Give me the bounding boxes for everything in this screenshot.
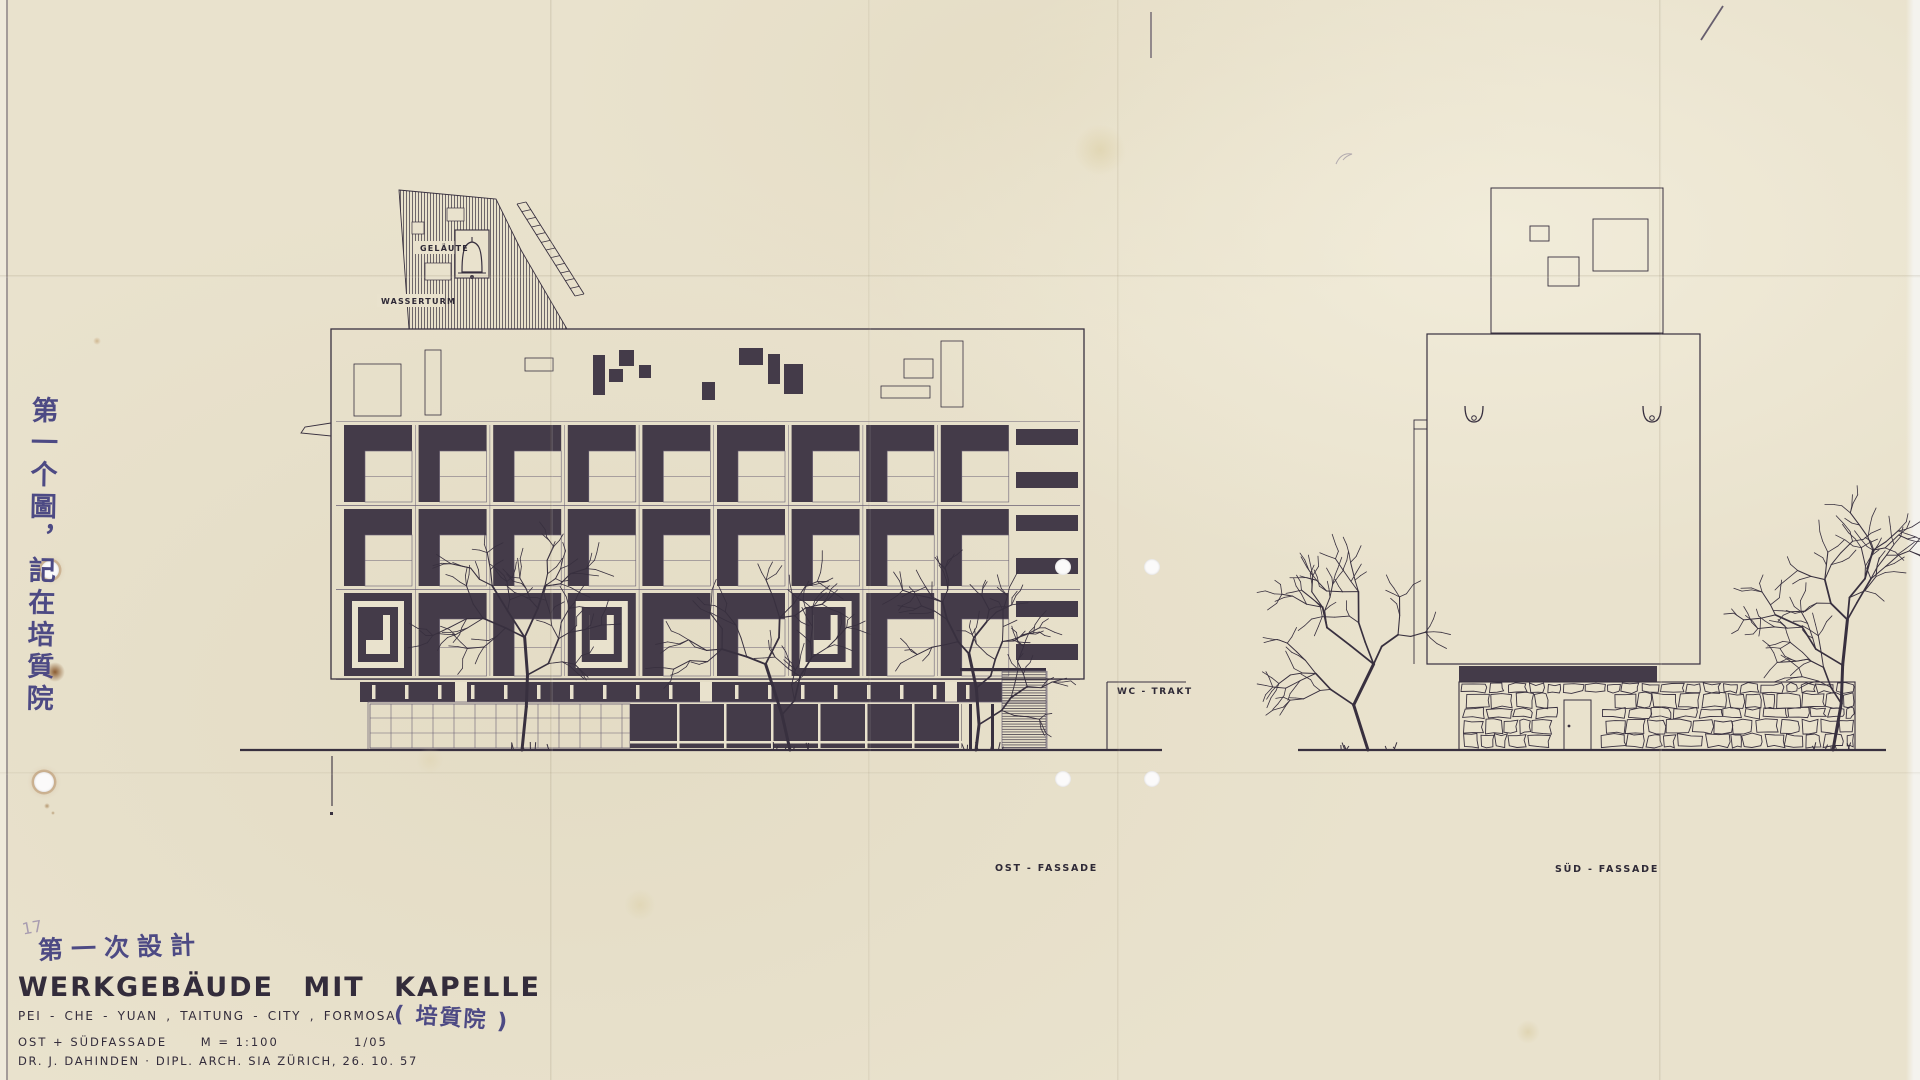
- south-body-outline: [1427, 334, 1700, 664]
- label-gelaeute: GELÄUTE: [420, 243, 469, 253]
- handwritten-annotation-top: 第一次設計: [37, 925, 203, 967]
- pen-slash-mark: [1701, 6, 1723, 40]
- punch-hole: [1144, 559, 1160, 575]
- pencil-scribble: [1336, 154, 1352, 164]
- label-wasserturm: WASSERTURM: [381, 297, 456, 306]
- punch-hole: [1055, 771, 1071, 787]
- punch-hole: [1144, 771, 1160, 787]
- facades-label: OST + SÜDFASSADE: [18, 1035, 167, 1049]
- handwritten-institution-name: ( 培質院 ): [393, 996, 510, 1036]
- gargoyle-spout-icon: [1643, 406, 1661, 422]
- sheet-number: 1/05: [354, 1035, 388, 1049]
- roof-fin: [301, 423, 331, 436]
- east-facade-outline: [331, 329, 1084, 679]
- facade-scale-line: OST + SÜDFASSADE M = 1:100 1/05: [18, 1035, 279, 1049]
- scale-label: M = 1:100: [201, 1035, 279, 1049]
- scanned-drawing-sheet: { "document": { "pencil_number": "17", "…: [0, 0, 1920, 1080]
- punch-hole: [34, 772, 54, 792]
- bell-and-water-tower: [377, 190, 584, 329]
- roof-box-outline: [1491, 188, 1663, 333]
- punch-hole: [1055, 559, 1071, 575]
- door-knob: [1568, 725, 1571, 728]
- south-elevation: [1298, 188, 1886, 750]
- handwritten-annotation-side: 第一个圖，記在培質院: [17, 396, 62, 727]
- east-elevation: [240, 190, 1186, 815]
- label-wc-trakt: WC - TRAKT: [1117, 687, 1193, 697]
- gargoyle-spout-icon: [1465, 406, 1483, 422]
- drawing-title: WERKGEBÄUDE MIT KAPELLE: [18, 972, 541, 1003]
- title-block: 17 第一次設計 WERKGEBÄUDE MIT KAPELLE PEI - C…: [18, 916, 578, 1080]
- rubble-stone-wall: [1459, 682, 1855, 750]
- label-sued-fassade: SÜD - FASSADE: [1555, 864, 1659, 875]
- drawing-subtitle: PEI - CHE - YUAN , TAITUNG - CITY , FORM…: [18, 1009, 396, 1023]
- registration-mark: [1150, 12, 1152, 58]
- architect-line: DR. J. DAHINDEN · DIPL. ARCH. SIA ZÜRICH…: [18, 1054, 418, 1068]
- label-ost-fassade: OST - FASSADE: [995, 863, 1098, 874]
